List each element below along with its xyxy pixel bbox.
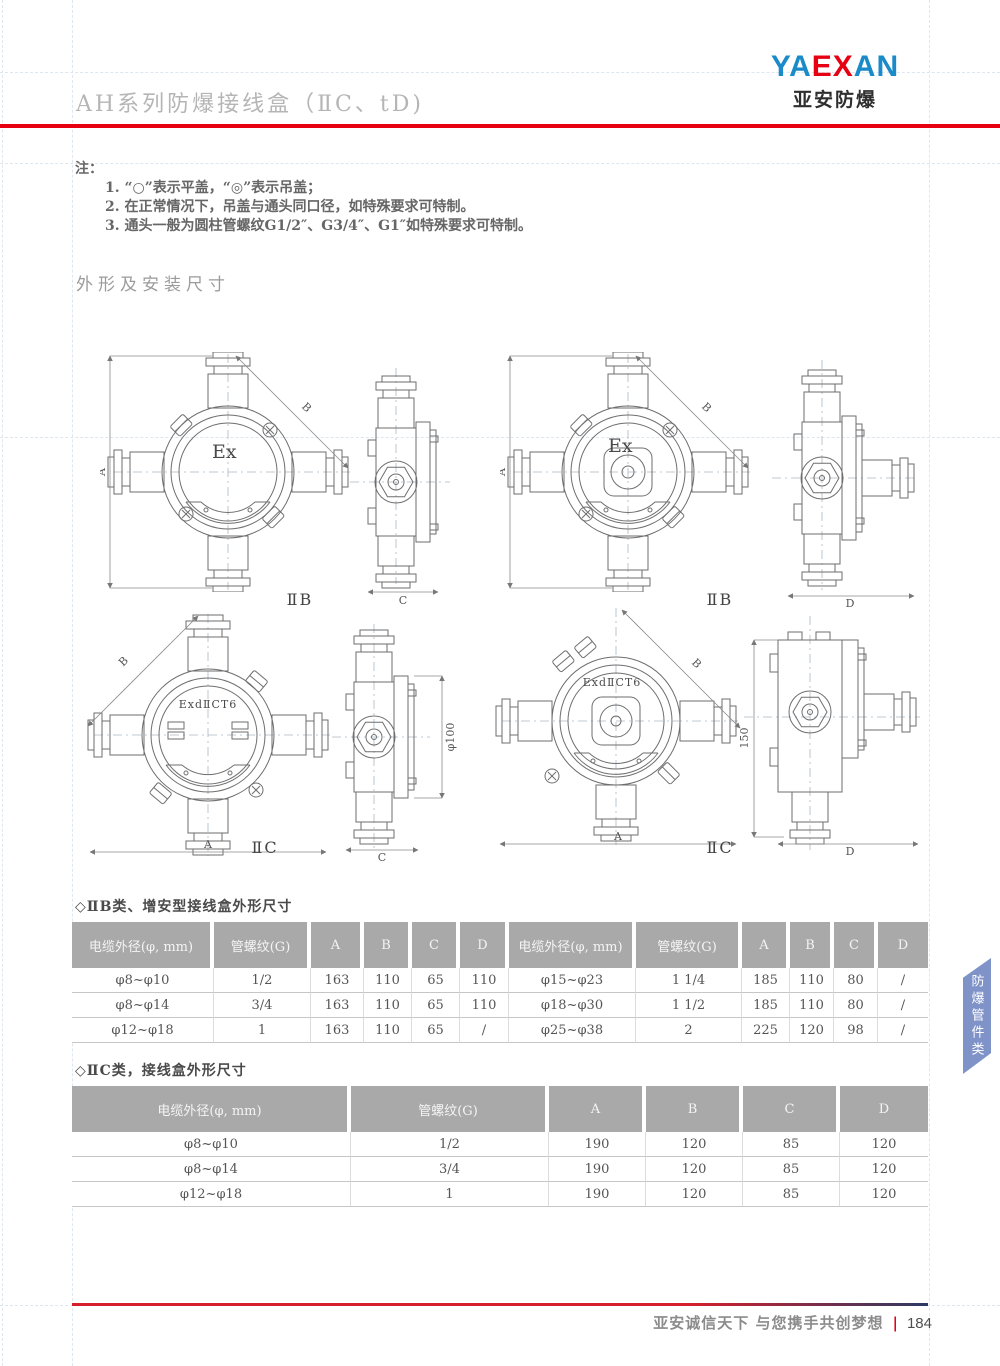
table-cell: 120 xyxy=(840,1182,928,1207)
dim-label-d: D xyxy=(846,597,855,608)
dim-label-c: C xyxy=(399,594,407,606)
dim-label-b: B xyxy=(689,656,704,671)
dim-label-b: B xyxy=(699,400,714,415)
table-row: φ12~φ18119012085120 xyxy=(72,1182,928,1207)
column-header: 管螺纹(G) xyxy=(214,922,311,968)
table-cell: 110 xyxy=(364,968,412,993)
dim-label-phi100: φ100 xyxy=(444,723,457,752)
logo-segment: AN xyxy=(854,50,899,83)
table-cell: 110 xyxy=(460,993,509,1018)
column-header: 管螺纹(G) xyxy=(636,922,742,968)
table-cell: φ8~φ10 xyxy=(72,968,214,993)
table-cell: 110 xyxy=(790,993,834,1018)
type-label-iib: ⅡB xyxy=(265,590,335,609)
side-view-drawing-iib-2: D xyxy=(770,358,920,608)
table-title-iib: ◇ⅡB类、增安型接线盒外形尺寸 xyxy=(75,896,292,916)
table-cell: 120 xyxy=(790,1018,834,1043)
page-number: 184 xyxy=(907,1315,932,1332)
table-cell: 190 xyxy=(549,1157,646,1182)
dim-label-a: A xyxy=(203,838,213,851)
side-view-drawing-iib-1: C xyxy=(348,366,453,606)
ex-mark: ExdⅡCT6 xyxy=(179,698,238,711)
dim-label-b: B xyxy=(116,654,131,669)
type-label-iic: ⅡC xyxy=(230,838,300,857)
table-cell: φ8~φ10 xyxy=(72,1132,351,1157)
column-header: C xyxy=(743,1086,840,1132)
dim-label-a: A xyxy=(613,830,623,843)
table-cell: 185 xyxy=(742,968,790,993)
table-cell: 1 1/4 xyxy=(636,968,742,993)
category-tab-label: 防爆管件类 xyxy=(968,974,987,1059)
front-view-drawing-iib-2: Ex A B xyxy=(500,352,756,592)
category-tab: 防爆管件类 xyxy=(963,958,991,1074)
dim-label-a: A xyxy=(500,467,508,477)
table-row: φ8~φ101/219012085120 xyxy=(72,1132,928,1157)
table-cell: 163 xyxy=(311,1018,364,1043)
table-cell: 1/2 xyxy=(214,968,311,993)
page-title: AH系列防爆接线盒（ⅡC、tD) xyxy=(76,86,424,118)
column-header: 电缆外径(φ, mm) xyxy=(72,1086,351,1132)
table-cell: 3/4 xyxy=(214,993,311,1018)
iib-dimensions-table: 电缆外径(φ, mm)管螺纹(G)ABCD电缆外径(φ, mm)管螺纹(G)AB… xyxy=(72,922,928,1043)
table-cell: 190 xyxy=(549,1182,646,1207)
footer-separator: | xyxy=(893,1314,898,1332)
table-cell: / xyxy=(878,993,928,1018)
table-cell: 85 xyxy=(743,1157,840,1182)
ex-mark: ExdⅡCT6 xyxy=(583,676,642,689)
table-cell: / xyxy=(460,1018,509,1043)
dim-label-150: 150 xyxy=(740,728,751,749)
table-cell: 3/4 xyxy=(351,1157,549,1182)
table-title-iic: ◇ⅡC类，接线盒外形尺寸 xyxy=(75,1060,247,1080)
table-cell: φ15~φ23 xyxy=(509,968,636,993)
table-cell: 1 1/2 xyxy=(636,993,742,1018)
table-row: φ8~φ101/216311065110φ15~φ231 1/418511080… xyxy=(72,968,928,993)
table-cell: 110 xyxy=(790,968,834,993)
table-cell: 110 xyxy=(364,993,412,1018)
footer-rule xyxy=(72,1303,928,1306)
table-cell: φ12~φ18 xyxy=(72,1018,214,1043)
column-header: D xyxy=(460,922,509,968)
column-header: 电缆外径(φ, mm) xyxy=(72,922,214,968)
section-title: 外形及安装尺寸 xyxy=(76,270,230,295)
table-cell: 1 xyxy=(351,1182,549,1207)
table-cell: 65 xyxy=(412,968,460,993)
column-header: B xyxy=(646,1086,743,1132)
logo-segment: EX xyxy=(812,50,854,83)
table-cell: 1/2 xyxy=(351,1132,549,1157)
column-header: C xyxy=(834,922,878,968)
side-view-drawing-iic-1: φ100 C xyxy=(330,622,470,862)
table-cell: 163 xyxy=(311,993,364,1018)
note-item: 2. 在正常情况下，吊盖与通头同口径，如特殊要求可特制。 xyxy=(105,198,532,217)
type-label-iic: ⅡC xyxy=(685,838,755,857)
table-cell: 120 xyxy=(646,1157,743,1182)
column-header: D xyxy=(840,1086,928,1132)
notes-block: 注： 1. “○”表示平盖，“◎”表示吊盖； 2. 在正常情况下，吊盖与通头同口… xyxy=(75,160,532,236)
table-cell: / xyxy=(878,1018,928,1043)
table-cell: 120 xyxy=(646,1182,743,1207)
header-row: 电缆外径(φ, mm)管螺纹(G)ABCD电缆外径(φ, mm)管螺纹(G)AB… xyxy=(72,922,928,968)
table-cell: 163 xyxy=(311,968,364,993)
table-cell: 185 xyxy=(742,993,790,1018)
table-cell: 85 xyxy=(743,1132,840,1157)
table-cell: 80 xyxy=(834,968,878,993)
logo-wordmark: YAEXAN xyxy=(760,52,910,82)
table-cell: φ8~φ14 xyxy=(72,993,214,1018)
table-cell: 110 xyxy=(364,1018,412,1043)
table-cell: 65 xyxy=(412,1018,460,1043)
dim-label-b: B xyxy=(299,400,314,415)
column-header: D xyxy=(878,922,928,968)
footer-slogan: 亚安诚信天下 与您携手共创梦想 xyxy=(653,1314,883,1332)
table-cell: 85 xyxy=(743,1182,840,1207)
table-cell: 190 xyxy=(549,1132,646,1157)
table-row: φ8~φ143/419012085120 xyxy=(72,1157,928,1182)
notes-label: 注： xyxy=(75,160,532,179)
table-cell: 65 xyxy=(412,993,460,1018)
front-view-drawing-iic-1: ExdⅡCT6 B A xyxy=(80,610,336,860)
column-header: B xyxy=(364,922,412,968)
table-cell: 80 xyxy=(834,993,878,1018)
table-cell: 120 xyxy=(840,1132,928,1157)
dim-label-a: A xyxy=(100,467,108,477)
table-cell: / xyxy=(878,968,928,993)
column-header: C xyxy=(412,922,460,968)
table-cell: φ8~φ14 xyxy=(72,1157,351,1182)
table-cell: 110 xyxy=(460,968,509,993)
dim-label-d: D xyxy=(846,845,855,857)
note-item: 3. 通头一般为圆柱管螺纹G1/2″、G3/4″、G1″如特殊要求可特制。 xyxy=(105,217,532,236)
table-cell: φ25~φ38 xyxy=(509,1018,636,1043)
table-cell: 120 xyxy=(646,1132,743,1157)
table-cell: φ12~φ18 xyxy=(72,1182,351,1207)
table-cell: 98 xyxy=(834,1018,878,1043)
column-header: A xyxy=(549,1086,646,1132)
table-cell: 1 xyxy=(214,1018,311,1043)
header-rule xyxy=(0,124,1000,128)
column-header: B xyxy=(790,922,834,968)
table-cell: φ18~φ30 xyxy=(509,993,636,1018)
footer: 亚安诚信天下 与您携手共创梦想|184 xyxy=(300,1312,932,1333)
table-row: φ12~φ18116311065/φ25~φ38222512098/ xyxy=(72,1018,928,1043)
catalog-page: AH系列防爆接线盒（ⅡC、tD) YAEXAN 亚安防爆 注： 1. “○”表示… xyxy=(0,0,1000,1366)
ex-mark: Ex xyxy=(608,435,633,457)
ex-mark: Ex xyxy=(212,441,237,463)
column-header: 电缆外径(φ, mm) xyxy=(509,922,636,968)
dim-label-c: C xyxy=(378,851,386,862)
column-header: 管螺纹(G) xyxy=(351,1086,549,1132)
note-item: 1. “○”表示平盖，“◎”表示吊盖； xyxy=(105,179,532,198)
front-view-drawing-iic-2: ExdⅡCT6 B A xyxy=(490,606,746,851)
table-cell: 120 xyxy=(840,1157,928,1182)
logo-subtitle: 亚安防爆 xyxy=(760,85,910,112)
side-view-drawing-iic-2: 150 D xyxy=(740,612,925,857)
table-cell: 225 xyxy=(742,1018,790,1043)
column-header: A xyxy=(742,922,790,968)
brand-logo: YAEXAN 亚安防爆 xyxy=(760,52,910,112)
table-row: φ8~φ143/416311065110φ18~φ301 1/218511080… xyxy=(72,993,928,1018)
header-row: 电缆外径(φ, mm)管螺纹(G)ABCD xyxy=(72,1086,928,1132)
front-view-drawing-iib-1: Ex A B xyxy=(100,352,356,592)
logo-segment: YA xyxy=(771,50,812,83)
column-header: A xyxy=(311,922,364,968)
table-cell: 2 xyxy=(636,1018,742,1043)
iic-dimensions-table: 电缆外径(φ, mm)管螺纹(G)ABCDφ8~φ101/21901208512… xyxy=(72,1086,928,1207)
